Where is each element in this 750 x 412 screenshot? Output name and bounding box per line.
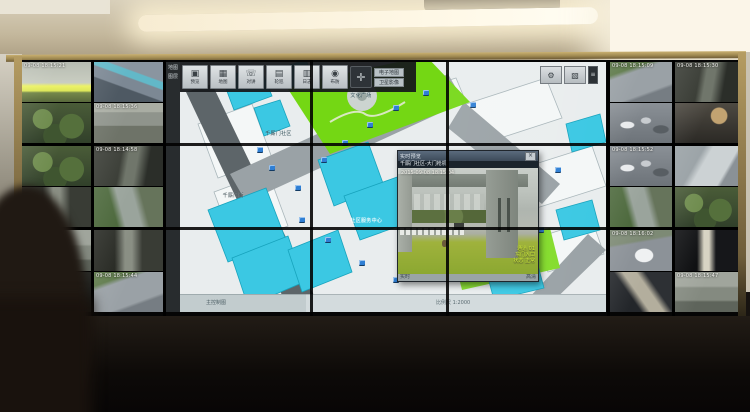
right-wall: [746, 52, 750, 292]
camera-tile[interactable]: [610, 103, 672, 143]
map-side-tab[interactable]: ≡: [588, 66, 598, 84]
map-label: 文化广场: [350, 92, 371, 99]
toolbar-button-5[interactable]: ▥日志: [294, 65, 320, 89]
camera-tile[interactable]: [675, 146, 738, 186]
toolbar-button-label: 布防: [330, 79, 339, 84]
video-osd-text: 通道 01东门入口状态 正常: [513, 246, 535, 264]
camera-marker-icon[interactable]: [423, 90, 429, 95]
camera-panel: 09-08 18:15:21: [22, 62, 91, 143]
gear-button[interactable]: ⚙: [540, 66, 562, 84]
camera-tile[interactable]: [610, 272, 672, 313]
camera-panel: 09-08 18:15:36: [94, 62, 163, 143]
foreground-shoulder: [0, 298, 92, 412]
map-status-bar: 主控制图 比例尺 1:2000: [180, 294, 606, 312]
camera-tile[interactable]: [94, 230, 163, 271]
popup-camera-name: 千厮门社区-大门枪机: [398, 161, 538, 168]
map-icon: ▦: [219, 69, 228, 79]
camera-panel: 09-08 18:14:58: [94, 146, 163, 227]
camera-tile[interactable]: [22, 103, 91, 143]
camera-osd-text: 09-08 18:15:36: [96, 104, 137, 110]
toolbar-button-label: 地图: [218, 79, 227, 84]
status-left-label: 主控制图: [180, 294, 306, 312]
camera-tile[interactable]: [610, 187, 672, 227]
map-graphics: [180, 62, 606, 312]
camera-marker-icon[interactable]: [470, 102, 476, 107]
camera-marker-icon[interactable]: [359, 260, 365, 265]
camera-marker-icon[interactable]: [295, 185, 301, 190]
camera-tile[interactable]: [675, 103, 738, 143]
ceiling-light-panel: [610, 0, 750, 54]
camera-tile[interactable]: 09-08 18:15:36: [94, 103, 163, 143]
campus-map[interactable]: 千厮门社区文化广场社区服务中心千厮门街: [180, 62, 606, 312]
toolbar-button-label: 对讲: [246, 79, 255, 84]
layers-button[interactable]: ▧: [564, 66, 586, 84]
camera-panel: 09-08 18:15:09: [610, 62, 672, 143]
camera-tile[interactable]: [675, 230, 738, 271]
guard-booth: [454, 223, 464, 230]
gate-pillar-right: [486, 170, 518, 258]
map-label: 千厮门街: [223, 192, 244, 199]
camera-marker-icon[interactable]: [299, 217, 305, 222]
popup-video-area[interactable]: 2015-09-08 18:15:04 通道 01东门入口状态 正常: [398, 168, 538, 274]
camera-tile[interactable]: [94, 62, 163, 102]
map-edge-label: 图层: [167, 74, 179, 80]
camera-osd-text: 09-08 18:15:21: [24, 63, 65, 69]
map-label: 千厮门社区: [265, 130, 292, 137]
intercom-icon: ☏: [245, 69, 256, 79]
camera-tile[interactable]: 09-08 18:15:21: [22, 62, 91, 102]
log-icon: ▥: [303, 69, 312, 79]
video-timestamp: 2015-09-08 18:15:04: [401, 170, 454, 176]
map-view-buttons: ⚙▧≡: [540, 66, 598, 84]
background-trees: [412, 210, 488, 223]
gate-pillar-left: [398, 174, 412, 252]
popup-title: 实时预览: [400, 153, 421, 160]
toolbar-button-3[interactable]: ☏对讲: [238, 65, 264, 89]
pan-dpad-control[interactable]: ✛: [350, 66, 372, 88]
popup-footer: 实时 高清: [398, 274, 538, 281]
map-label: 社区服务中心: [350, 217, 382, 224]
camera-tile[interactable]: [94, 187, 163, 227]
map-toolbar: ▣预览▦地图☏对讲▤轮巡▥日志◉布防 ✛ 电子地图卫星影像: [180, 62, 416, 92]
toolbar-button-label: 预览: [190, 79, 199, 84]
camera-tile[interactable]: [675, 187, 738, 227]
camera-osd-text: 09-08 18:15:47: [677, 273, 718, 279]
tour-icon: ▤: [275, 69, 284, 79]
camera-tile[interactable]: 09-08 18:15:47: [675, 272, 738, 313]
osd-line: 状态 正常: [513, 258, 535, 264]
camera-marker-icon[interactable]: [257, 147, 263, 152]
camera-marker-icon[interactable]: [321, 157, 327, 162]
camera-marker-icon[interactable]: [555, 167, 561, 172]
camera-tile[interactable]: [22, 146, 91, 186]
wall-frame-right: [738, 52, 746, 324]
footer-left-label: 实时: [400, 274, 410, 281]
toolbar-button-2[interactable]: ▦地图: [210, 65, 236, 89]
control-room-photo: 09-08 18:15:2109-08 18:15:3609-08 18:14:…: [0, 0, 750, 412]
camera-osd-text: 09-08 18:15:30: [677, 63, 718, 69]
map-edge-label: 地图: [167, 65, 179, 71]
camera-tile[interactable]: 09-08 18:15:52: [610, 146, 672, 186]
camera-tile[interactable]: 09-08 18:15:44: [94, 272, 163, 313]
gear-icon: ⚙: [547, 71, 554, 80]
camera-osd-text: 09-08 18:14:58: [96, 147, 137, 153]
live-video-popup[interactable]: 实时预览 × 千厮门社区-大门枪机 2015-09-08 18:15:04 通道…: [397, 150, 539, 282]
lower-wall: [0, 316, 750, 412]
dpad-icon: ✛: [356, 72, 365, 83]
close-icon[interactable]: ×: [525, 152, 536, 161]
camera-tile[interactable]: 09-08 18:14:58: [94, 146, 163, 186]
camera-marker-icon[interactable]: [325, 237, 331, 242]
guard-icon: ◉: [331, 69, 339, 79]
monitor-icon: ▣: [191, 69, 200, 79]
camera-marker-icon[interactable]: [393, 105, 399, 110]
video-wall: 09-08 18:15:2109-08 18:15:3609-08 18:14:…: [22, 60, 738, 316]
camera-panel: 09-08 18:15:47: [675, 230, 738, 312]
camera-panel: [675, 146, 738, 227]
camera-osd-text: 09-08 18:15:44: [96, 273, 137, 279]
toolbar-button-label: 轮巡: [274, 79, 283, 84]
map-mode-button-2[interactable]: 卫星影像: [374, 78, 404, 87]
camera-tile[interactable]: 09-08 18:15:09: [610, 62, 672, 102]
toolbar-button-1[interactable]: ▣预览: [182, 65, 208, 89]
camera-tile[interactable]: 09-08 18:16:02: [610, 230, 672, 271]
map-mode-button-1[interactable]: 电子地图: [374, 68, 404, 77]
map-edge-strip: 地图图层: [166, 62, 180, 312]
status-scale-label: 比例尺 1:2000: [306, 294, 606, 312]
layers-icon: ▧: [571, 71, 579, 80]
camera-osd-text: 09-08 18:15:52: [612, 147, 653, 153]
camera-panel: 09-08 18:15:30: [675, 62, 738, 143]
camera-tile[interactable]: 09-08 18:15:30: [675, 62, 738, 102]
footer-right-label: 高清: [526, 274, 536, 281]
camera-marker-icon[interactable]: [342, 140, 348, 145]
camera-osd-text: 09-08 18:16:02: [612, 231, 653, 237]
camera-marker-icon[interactable]: [367, 122, 373, 127]
map-application[interactable]: 地图图层: [166, 62, 606, 312]
toolbar-button-4[interactable]: ▤轮巡: [266, 65, 292, 89]
camera-panel: 09-08 18:15:52: [610, 146, 672, 227]
toolbar-button-label: 日志: [302, 79, 311, 84]
right-camera-wall: 09-08 18:15:0909-08 18:15:3009-08 18:15:…: [610, 62, 738, 312]
camera-marker-icon[interactable]: [269, 165, 275, 170]
pedestrian: [442, 240, 447, 247]
popup-titlebar[interactable]: 实时预览 ×: [398, 151, 538, 161]
toolbar-button-6[interactable]: ◉布防: [322, 65, 348, 89]
camera-panel: 09-08 18:16:02: [610, 230, 672, 312]
camera-panel: 09-08 18:15:44: [94, 230, 163, 312]
ceiling-panel: [0, 0, 110, 14]
camera-osd-text: 09-08 18:15:09: [612, 63, 653, 69]
